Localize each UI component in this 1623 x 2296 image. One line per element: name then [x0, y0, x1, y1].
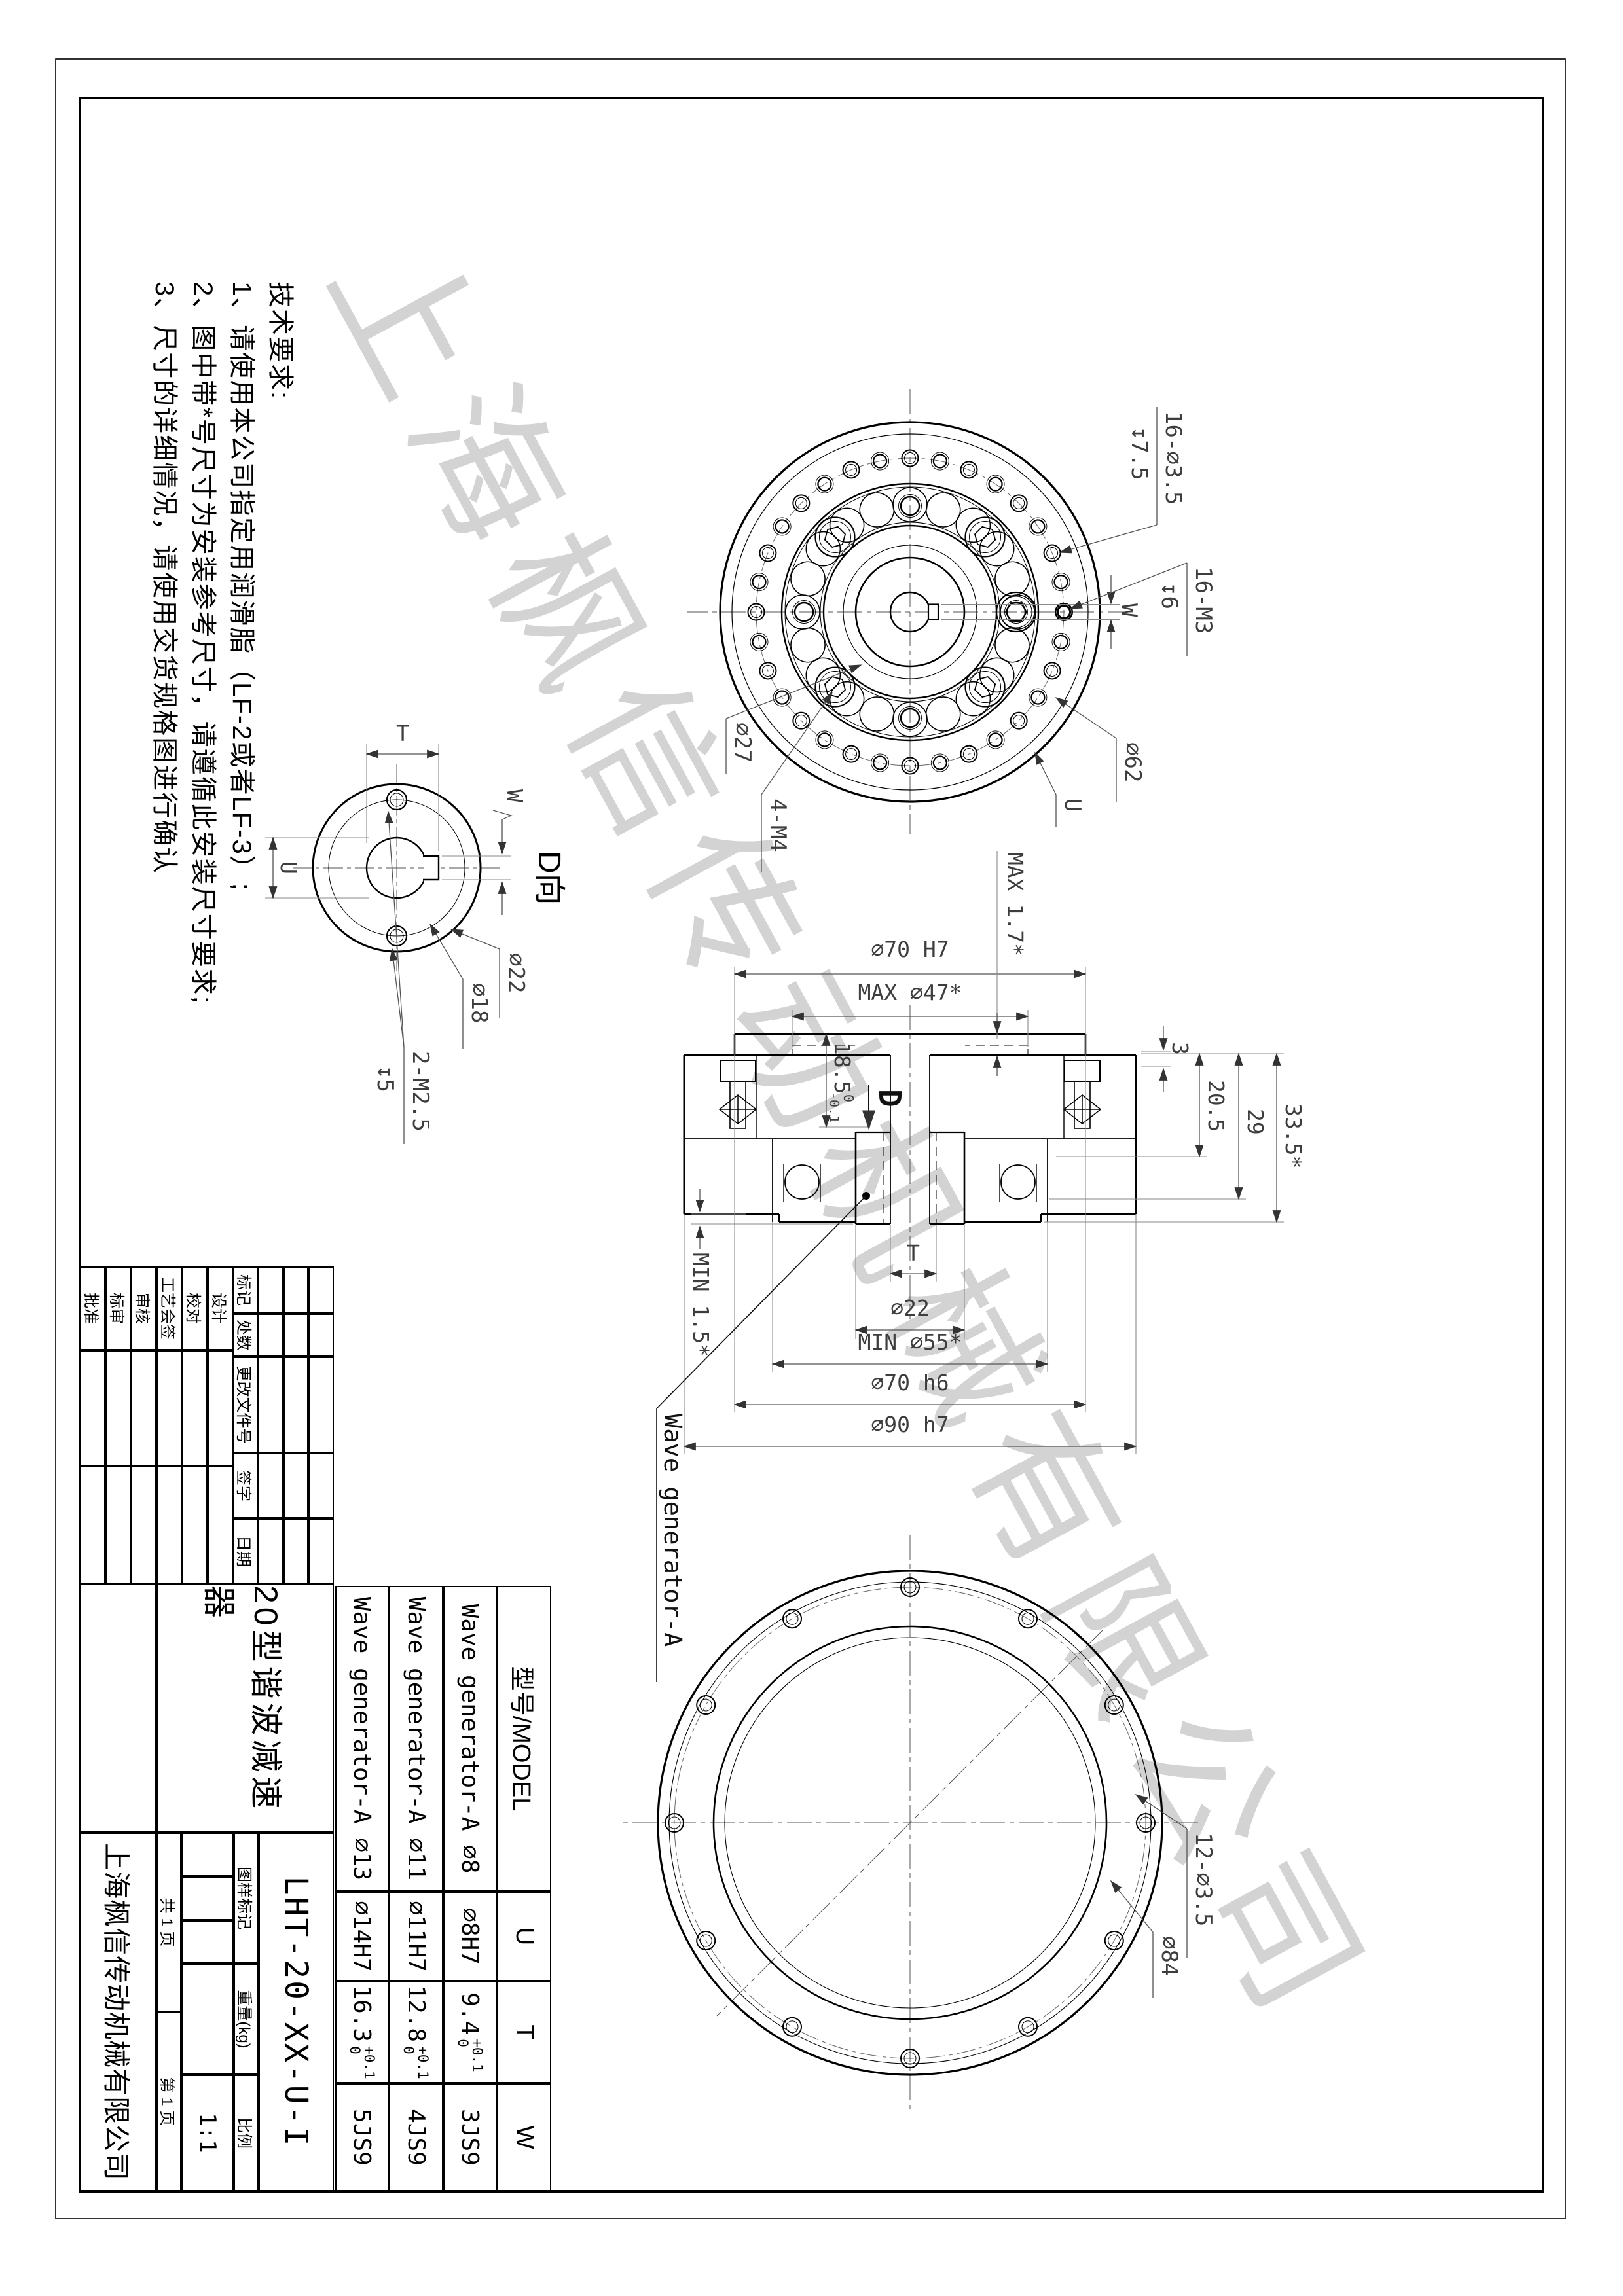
dim-3: 3	[1167, 1042, 1193, 1055]
model-cell: ∅11H7	[389, 1892, 443, 1981]
pages-total: 共 1 页	[156, 1833, 181, 2012]
tech-requirement-item: 1、请使用本公司指定用润滑脂（LF-2或者LF-3）;	[222, 281, 261, 1263]
empty-cell	[80, 1584, 156, 1833]
pages-current: 第 1 页	[156, 2012, 181, 2191]
label-dview-m25-depth: ↧5	[372, 1066, 398, 1092]
model-cell: 5JS9	[335, 2083, 389, 2191]
tol-lower: 0	[348, 2046, 362, 2079]
dim-d70h7: ∅70 H7	[871, 937, 949, 962]
model-cell: 16.3 +0.10	[335, 1981, 389, 2083]
model-cell: 4JS9	[389, 2083, 443, 2191]
sign-cell	[80, 1466, 105, 1584]
revision-cell	[308, 1453, 334, 1518]
revision-cell	[308, 1314, 334, 1357]
dim-185: 18.5	[830, 1042, 855, 1094]
sign-cell	[80, 1350, 105, 1466]
tol-upper: +0.1	[416, 2046, 431, 2079]
dim-d90h7: ∅90 h7	[871, 1412, 949, 1437]
stamp-label: 图样标记	[234, 1833, 259, 1964]
revision-header-count: 处数	[233, 1314, 258, 1357]
sign-label-check: 校对	[182, 1266, 208, 1350]
label-4-m4: 4-M4	[765, 798, 791, 852]
sign-label-audit: 审核	[131, 1266, 156, 1350]
dim-185-up: 0	[841, 1094, 856, 1102]
revision-cell	[283, 1314, 308, 1357]
sign-cell	[182, 1466, 208, 1584]
sign-cell	[182, 1350, 208, 1466]
model-cell: 9.4 +0.10	[443, 1981, 497, 2083]
scale-value: 1:1	[181, 2075, 234, 2191]
d-view-title: D向	[532, 851, 566, 905]
revision-cell	[283, 1357, 308, 1453]
weight-cell	[181, 1964, 234, 2075]
sign-cell	[208, 1466, 233, 1584]
tol-upper: +0.1	[470, 2039, 484, 2072]
label-16-m3: 16-M3	[1190, 567, 1216, 634]
model-cell: 3JS9	[443, 2083, 497, 2191]
callout-wave-generator: Wave generator-A	[659, 1414, 687, 1647]
model-cell: ∅14H7	[335, 1892, 389, 1981]
model-table: 型号/MODEL U T W Wave generator-A ∅8 ∅8H7 …	[335, 1586, 551, 2191]
drawing-sheet: 上海枫信传动机械有限公司	[0, 0, 1623, 2296]
sign-cell	[131, 1466, 156, 1584]
sign-cell	[105, 1466, 131, 1584]
dim-max17: MAX 1.7*	[1002, 852, 1028, 956]
model-table-header: W	[497, 2083, 551, 2191]
label-16-d35-depth: ↧7.5	[1126, 427, 1152, 480]
revision-cell	[308, 1518, 334, 1584]
model-cell: Wave generator-A ∅8	[443, 1586, 497, 1892]
dim-d70h6: ∅70 h6	[871, 1370, 949, 1395]
revision-cell	[258, 1453, 283, 1518]
model-table-header: T	[497, 1981, 551, 2083]
sign-label-design: 设计	[208, 1266, 233, 1350]
dim-min55: MIN ∅55*	[858, 1329, 962, 1355]
tech-requirements: 技术要求: 1、请使用本公司指定用润滑脂（LF-2或者LF-3）; 2、图中带*…	[145, 281, 299, 1263]
revision-cell	[258, 1314, 283, 1357]
revision-cell	[258, 1357, 283, 1453]
revision-cell	[283, 1453, 308, 1518]
dim-d22: ∅22	[890, 1295, 930, 1321]
weight-label: 重量(kg)	[234, 1964, 259, 2075]
product-name: 20型谐波减速器	[156, 1584, 334, 1833]
sign-cell	[156, 1466, 182, 1584]
drawing-number: LHT-20-XX-U-I	[259, 1833, 334, 2191]
sign-cell	[156, 1350, 182, 1466]
label-dview-m25: 2-M2.5	[407, 1051, 433, 1132]
revision-cell	[308, 1266, 334, 1314]
dim-29: 29	[1243, 1109, 1268, 1135]
sign-label-approve: 批准	[80, 1266, 105, 1350]
scale-label: 比例	[234, 2075, 259, 2191]
sign-label-process: 工艺会签	[156, 1266, 182, 1350]
model-cell: ∅8H7	[443, 1892, 497, 1981]
revision-header-sign: 签字	[233, 1453, 258, 1518]
view-d-letter: D	[872, 1089, 907, 1107]
label-front-u: U	[1059, 798, 1085, 812]
t-value: 9.4	[457, 1992, 484, 2035]
revision-cell	[308, 1357, 334, 1453]
sign-cell	[131, 1350, 156, 1466]
tech-requirement-item: 3、尺寸的详细情况，请使用交货规格图进行确认	[145, 281, 183, 1263]
tol-upper: +0.1	[362, 2046, 376, 2079]
label-d84: ∅84	[1156, 1936, 1182, 1976]
dim-sect-t: T	[907, 1240, 920, 1266]
d-view-dims: D向 T W U ∅22 ∅18 2-M2.5 ↧5	[265, 721, 566, 1144]
model-table-header: U	[497, 1892, 551, 1981]
revision-cell	[258, 1518, 283, 1584]
model-table-header: 型号/MODEL	[497, 1586, 551, 1892]
sign-label-std: 标审	[105, 1266, 131, 1350]
revision-header-mark: 标记	[233, 1266, 258, 1314]
label-d27: ∅27	[729, 723, 756, 762]
revision-cell	[283, 1518, 308, 1584]
revision-cell	[258, 1266, 283, 1314]
t-value: 12.8	[403, 1985, 429, 2042]
stamp-cell	[181, 1876, 234, 1920]
model-cell: 12.8 +0.10	[389, 1981, 443, 2083]
sign-cell	[105, 1350, 131, 1466]
dim-185-dn: -0.1	[826, 1092, 842, 1123]
dim-max47: MAX ∅47*	[858, 980, 962, 1005]
tech-requirement-item: 2、图中带*号尺寸为安装参考尺寸，请遵循此安装尺寸要求;	[183, 281, 222, 1263]
dim-205: 20.5	[1203, 1080, 1229, 1132]
drawing-page: 上海枫信传动机械有限公司	[0, 0, 1623, 2296]
model-cell: Wave generator-A ∅13	[335, 1586, 389, 1892]
revision-cell	[283, 1266, 308, 1314]
revision-header-date: 日期	[233, 1518, 258, 1584]
sign-cell	[208, 1350, 233, 1466]
model-cell: Wave generator-A ∅11	[389, 1586, 443, 1892]
label-d62: ∅62	[1120, 742, 1146, 782]
label-dview-d18: ∅18	[466, 983, 492, 1023]
label-16-d35: 16-∅3.5	[1160, 411, 1186, 505]
label-16-m3-depth: ↧6	[1156, 583, 1182, 609]
title-block: 标记 处数 更改文件号 签字 日期 设计 校对 工艺会签 审核 标审 批准 20…	[80, 1266, 334, 2191]
tech-requirements-title: 技术要求:	[261, 281, 299, 1263]
front-view	[687, 389, 1133, 834]
tol-lower: 0	[402, 2046, 416, 2079]
dim-335: 33.5*	[1281, 1103, 1306, 1168]
dim-dview-w: W	[502, 789, 528, 802]
label-12-d35: 12-∅3.5	[1190, 1833, 1216, 1926]
dim-dview-t: T	[396, 721, 409, 746]
label-dview-d22: ∅22	[503, 953, 529, 993]
revision-header-doc: 更改文件号	[233, 1357, 258, 1453]
dim-min15: MIN 1.5*	[688, 1253, 714, 1357]
tol-lower: 0	[456, 2039, 470, 2072]
company-name: 上海枫信传动机械有限公司	[80, 1833, 156, 2191]
dim-front-w: W	[1116, 603, 1142, 617]
t-value: 16.3	[349, 1985, 376, 2042]
stamp-cell	[181, 1920, 234, 1964]
stamp-cell	[181, 1833, 234, 1876]
